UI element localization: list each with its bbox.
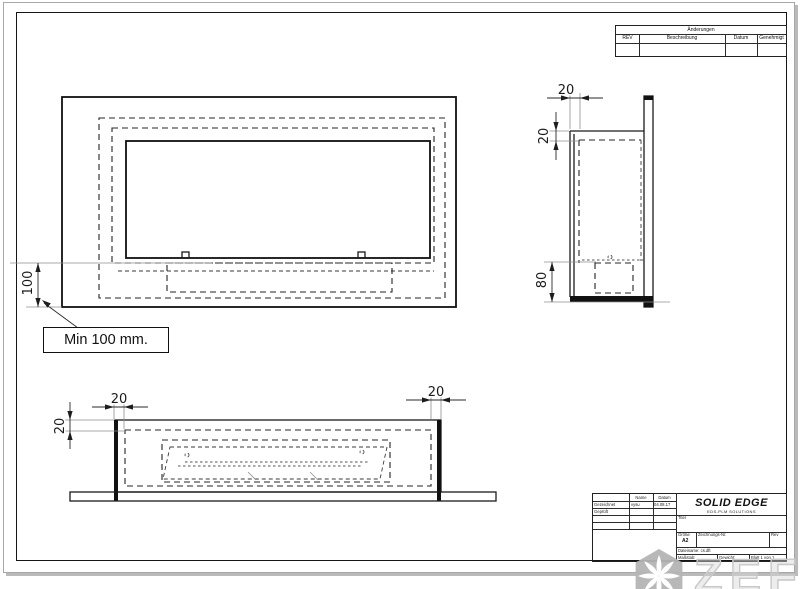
revision-table: Änderungen REV Beschreibung Datum Genehm… [615, 25, 787, 57]
titleblock-filename-label: Dateiname: [678, 548, 699, 553]
titleblock-filename-value: cs.dft [701, 548, 711, 553]
side-dimension-left-20: 20 [537, 112, 578, 160]
titleblock-drawn-label: Gezeichnet [594, 503, 615, 508]
dim-label-bottom-front-20: 20 [53, 418, 68, 435]
titleblock-drawn-date: 04.08.17 [654, 503, 670, 508]
titleblock-weight-label: Gewicht: [719, 556, 735, 561]
drawing-stroke [717, 554, 718, 561]
titleblock-scale-label: Maßstab: [678, 556, 695, 561]
drawing-stroke [644, 96, 653, 100]
drawing-stroke [115, 420, 441, 492]
titleblock-rev-label: Rev [771, 533, 778, 538]
drawing-stroke [608, 255, 612, 259]
drawing-stroke [35, 263, 40, 272]
revision-col-description: Beschreibung [639, 36, 725, 42]
drawing-stroke [112, 128, 434, 263]
drawing-stroke [593, 529, 676, 530]
titleblock-col-name: Name [629, 496, 653, 501]
drawing-stroke [35, 298, 40, 307]
titleblock-col-date: Datum [653, 496, 676, 501]
drawing-stroke [553, 122, 558, 131]
dim-label-bottom-left-20: 20 [111, 392, 128, 407]
drawing-stroke [616, 43, 786, 44]
titleblock-checked-label: Geprüft [594, 510, 608, 515]
drawing-sheet-screenshot: 100 20 [0, 0, 800, 589]
drawing-stroke [360, 450, 364, 454]
solid-edge-logo: SOLID EDGE [677, 497, 786, 509]
revision-col-rev: REV [616, 36, 639, 42]
side-view [570, 96, 653, 307]
drawing-stroke [67, 411, 72, 420]
drawing-stroke [162, 440, 390, 482]
drawing-stroke [167, 263, 392, 292]
drawing-stroke [696, 532, 697, 547]
dim-label-side-left-20: 20 [537, 128, 552, 145]
drawing-stroke [114, 420, 118, 501]
dim-label-side-80: 80 [535, 272, 550, 289]
drawing-stroke [185, 453, 189, 457]
dim-label-bottom-right-20: 20 [428, 385, 445, 400]
drawing-stroke [749, 554, 750, 561]
titleblock-size-value: A2 [682, 539, 688, 545]
drawing-stroke [593, 522, 676, 523]
titleblock-dwgno-label: Zeichnungs-Nr. [698, 533, 726, 538]
titleblock-title-label: Titel [678, 516, 686, 521]
drawing-stroke [70, 492, 496, 501]
solid-edge-logo-subtitle: EDS-PLM SOLUTIONS [677, 509, 786, 514]
drawing-stroke [769, 532, 770, 547]
bottom-dimension-left-20: 20 [92, 392, 148, 429]
title-block: Name Datum Gezeichnet vysu 04.08.17 Gepr… [592, 493, 787, 562]
revision-table-title: Änderungen [616, 28, 786, 34]
drawing-stroke [42, 300, 51, 308]
drawing-stroke [593, 515, 786, 516]
revision-col-date: Datum [725, 36, 757, 42]
front-view [62, 97, 456, 307]
titleblock-filename: Dateiname: cs.dft [678, 549, 711, 554]
drawing-stroke [437, 420, 441, 501]
titleblock-size-label: Größe [678, 533, 690, 538]
titleblock-drawn-name: vysu [631, 503, 640, 508]
front-dimension-100: 100 [10, 263, 212, 328]
revision-col-approved: Genehmigt [757, 36, 786, 42]
drawing-stroke [163, 447, 387, 479]
bottom-dimension-right-20: 20 [406, 385, 466, 419]
drawing-stroke [570, 296, 653, 302]
drawing-stroke [125, 430, 431, 486]
dim-label-front-100: 100 [21, 271, 36, 296]
drawing-stroke [553, 141, 558, 150]
drawing-stroke [595, 263, 633, 293]
bottom-view [70, 420, 496, 501]
drawing-stroke [644, 96, 653, 307]
titleblock-sheet-label: Blatt 1 von 1 [751, 556, 774, 561]
drawing-stroke [580, 95, 589, 100]
drawing-stroke [549, 262, 554, 271]
dim-label-side-top-20: 20 [558, 83, 575, 98]
drawing-stroke [549, 293, 554, 302]
drawing-stroke [67, 431, 72, 440]
drawing-stroke [126, 141, 430, 258]
min-distance-note: Min 100 mm. [43, 327, 169, 353]
min-distance-note-label: Min 100 mm. [64, 332, 148, 348]
